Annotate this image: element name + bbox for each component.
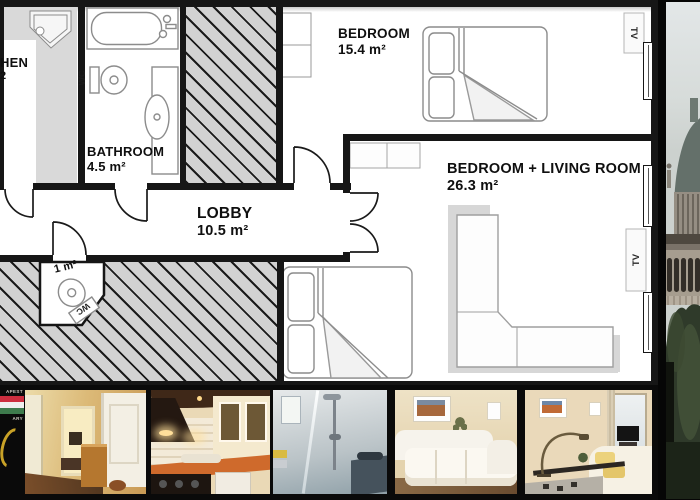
brand-text-bottom: ARY: [12, 416, 23, 421]
room-area: 4.5 m²: [87, 159, 164, 174]
wall-segment: [276, 0, 283, 190]
bedroom-photo[interactable]: [525, 390, 652, 494]
wall-segment: [0, 255, 53, 262]
kitchen-glass-door: [245, 402, 267, 442]
bathroom-wc-label: WC: [77, 65, 87, 91]
kitchen-label-fragment: HEN: [0, 55, 28, 70]
floorplan-listing-image: WC: [0, 0, 700, 500]
window-icon: [643, 292, 653, 353]
hallway-window: [25, 395, 43, 487]
wall-segment: [147, 183, 294, 190]
living-small-frame: [487, 402, 501, 420]
wall-segment: [180, 0, 186, 190]
living-sofa-seam: [465, 450, 467, 484]
bathroom-label: BATHROOM 4.5 m²: [87, 144, 164, 175]
living-room-tv-label: TV: [631, 248, 641, 272]
bedroom-bed: [423, 27, 547, 121]
wc-door: [53, 222, 86, 255]
lobby-label: LOBBY 10.5 m²: [197, 205, 252, 240]
room-name: BATHROOM: [87, 144, 164, 159]
shower-window: [281, 396, 301, 424]
brand-emblem-icon: [0, 426, 24, 470]
kitchen-spotlights: [197, 396, 202, 401]
room-name: LOBBY: [197, 205, 252, 223]
wall-segment: [33, 183, 115, 190]
window-icon: [643, 42, 653, 100]
nook-bed: [283, 267, 412, 378]
wall-segment: [86, 255, 350, 262]
french-door-bottom: [350, 224, 378, 252]
brand-text-top: APEST: [6, 389, 23, 394]
shower-towel-yellow: [273, 450, 287, 458]
brand-logo: APEST ARY: [0, 388, 24, 478]
hungarian-flag-green: [0, 408, 24, 414]
basilica-street-photo: [666, 2, 700, 499]
kitchen-burners: [159, 480, 167, 488]
bathtub: [87, 8, 178, 49]
bathroom-door: [115, 189, 147, 221]
corner-sofa: [448, 205, 620, 373]
wall-segment: [343, 134, 658, 141]
room-area: 26.3 m²: [447, 178, 641, 195]
side-photo-column: [658, 0, 700, 500]
shower-basin: [357, 452, 383, 460]
bedroom-door: [294, 147, 330, 183]
living-room-cabinet: [350, 143, 420, 168]
living-picture-art: [417, 400, 445, 416]
bedroom-tv-label: TV: [629, 21, 639, 45]
photo-strip: APEST ARY: [0, 385, 666, 500]
kitchen-door: [5, 189, 33, 217]
toilet-icon: [90, 66, 127, 94]
living-sofa-seam: [435, 450, 437, 484]
basilica-shapes: [666, 2, 700, 499]
room-area: 15.4 m²: [338, 42, 410, 58]
wall-segment: [277, 262, 284, 381]
wall-segment: [343, 141, 350, 193]
hallway-photo[interactable]: [25, 390, 146, 494]
hallway-dresser: [81, 444, 107, 487]
hallway-stool: [109, 480, 126, 491]
shower-photo[interactable]: [273, 390, 387, 494]
living-room-label: BEDROOM + LIVING ROOM 26.3 m²: [447, 161, 641, 195]
bedroom-floor-lamp: [525, 390, 652, 494]
living-room-photo[interactable]: [395, 390, 517, 494]
living-sofa-arm: [487, 440, 517, 474]
kitchen-glass-door: [219, 402, 241, 442]
floor-plan: WC: [0, 0, 658, 388]
kitchen-dishwasher: [215, 472, 251, 494]
shower-counter: [351, 455, 387, 494]
room-area: 10.5 m²: [197, 223, 252, 240]
room-name: BEDROOM: [338, 26, 410, 42]
window-icon: [643, 165, 653, 227]
shower-head: [323, 394, 341, 400]
bedroom-label: BEDROOM 15.4 m²: [338, 26, 410, 58]
french-door-top: [350, 193, 378, 221]
room-name: BEDROOM + LIVING ROOM: [447, 161, 641, 178]
kitchen-area-fragment: 2: [0, 70, 6, 83]
shower-glass-edge: [302, 390, 319, 493]
shower-valve: [329, 434, 341, 440]
bedroom-wardrobe: [281, 13, 311, 77]
wall-segment: [0, 0, 658, 7]
kitchen-under-cabinet-light: [159, 430, 173, 436]
hallway-door-panel: [109, 404, 139, 464]
kitchen-sink: [181, 454, 221, 463]
shower-towel-white: [273, 460, 287, 468]
wall-segment: [0, 0, 4, 190]
kitchen-photo[interactable]: [151, 390, 270, 494]
wall-segment: [78, 0, 85, 190]
